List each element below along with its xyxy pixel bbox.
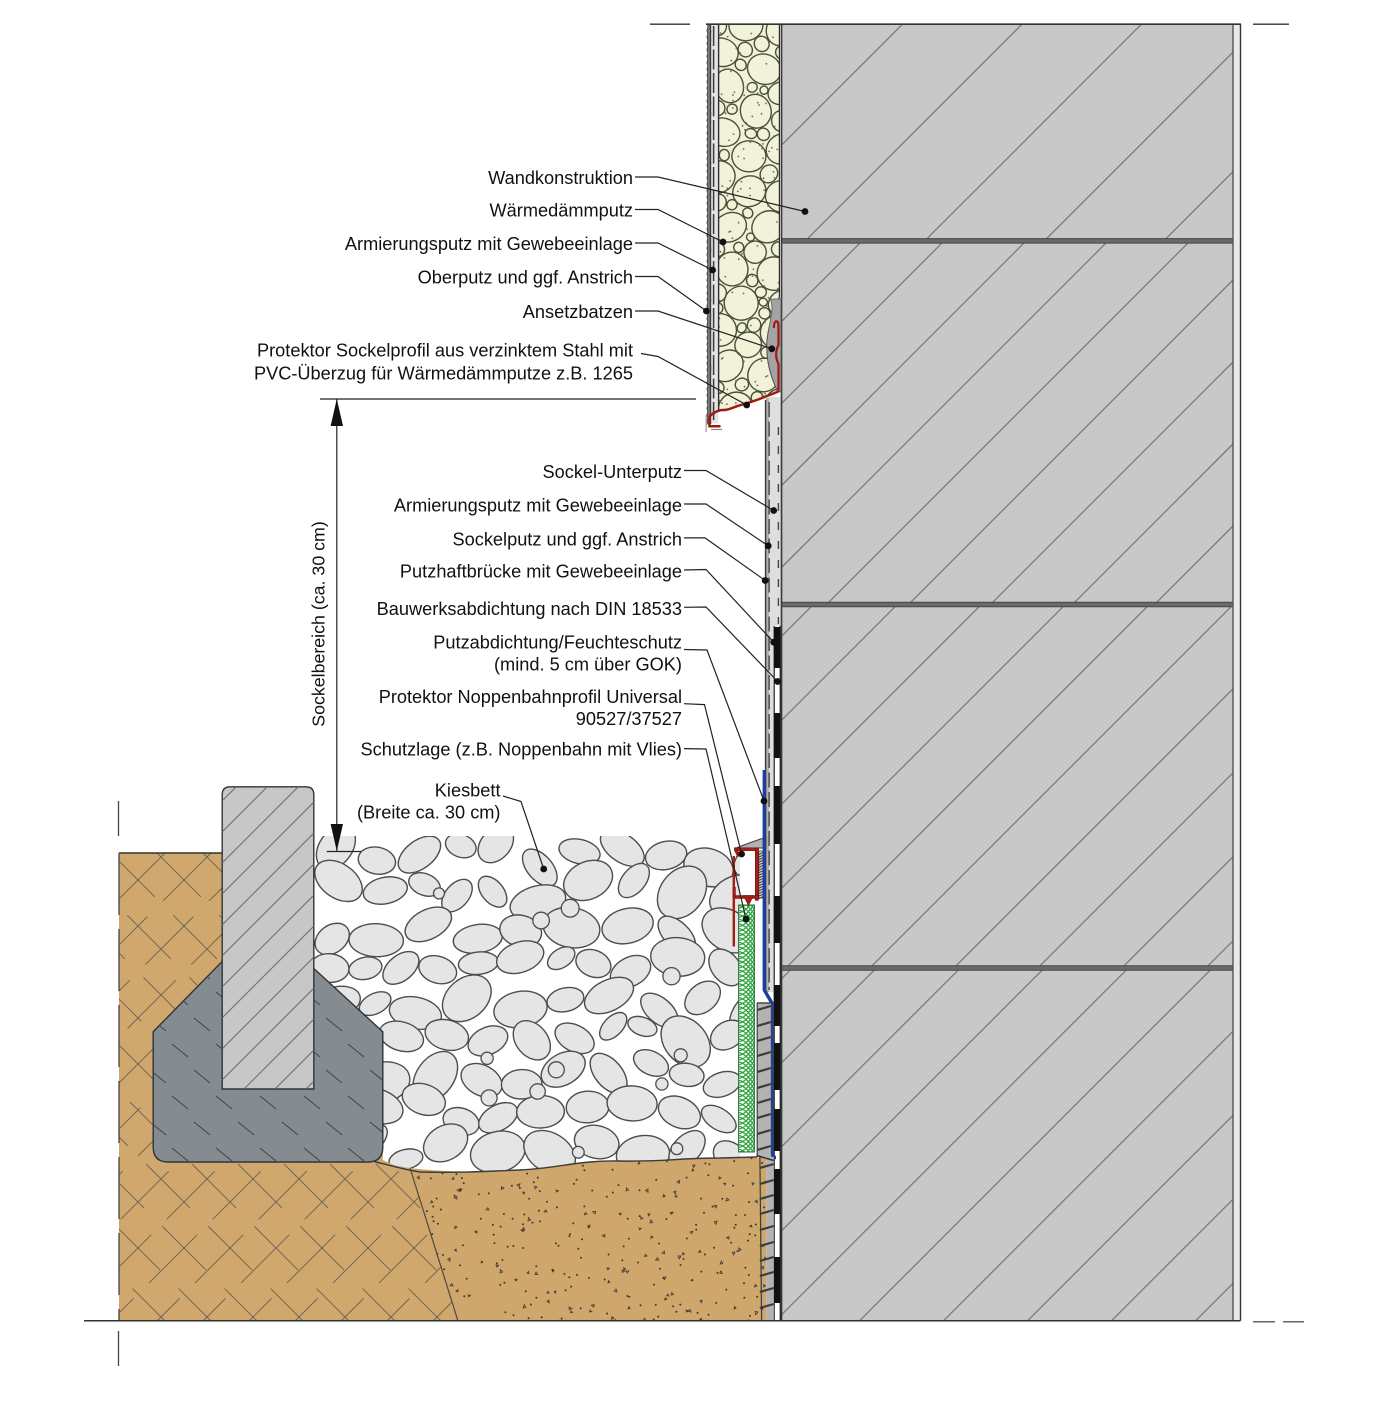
svg-text:Oberputz und ggf. Anstrich: Oberputz und ggf. Anstrich xyxy=(418,268,633,288)
svg-text:Wandkonstruktion: Wandkonstruktion xyxy=(488,168,633,188)
svg-text:(Breite ca. 30 cm): (Breite ca. 30 cm) xyxy=(357,803,501,823)
svg-text:(mind. 5 cm über GOK): (mind. 5 cm über GOK) xyxy=(494,655,682,675)
svg-text:Bauwerksabdichtung nach DIN 18: Bauwerksabdichtung nach DIN 18533 xyxy=(377,599,682,619)
svg-text:Armierungsputz mit Gewebeeinla: Armierungsputz mit Gewebeeinlage xyxy=(345,234,633,254)
svg-text:Putzhaftbrücke mit Gewebeeinla: Putzhaftbrücke mit Gewebeeinlage xyxy=(400,562,682,582)
svg-text:Schutzlage (z.B. Noppenbahn mi: Schutzlage (z.B. Noppenbahn mit Vlies) xyxy=(361,740,682,760)
svg-text:Putzabdichtung/Feuchteschutz: Putzabdichtung/Feuchteschutz xyxy=(433,633,682,653)
svg-text:Armierungsputz mit Gewebeeinla: Armierungsputz mit Gewebeeinlage xyxy=(394,495,682,515)
svg-text:Sockelbereich (ca. 30 cm): Sockelbereich (ca. 30 cm) xyxy=(309,521,329,727)
svg-text:Sockelputz und ggf. Anstrich: Sockelputz und ggf. Anstrich xyxy=(452,529,682,549)
svg-text:Ansetzbatzen: Ansetzbatzen xyxy=(523,302,633,322)
svg-text:Sockel-Unterputz: Sockel-Unterputz xyxy=(543,462,683,482)
svg-text:Protektor Noppenbahnprofil Uni: Protektor Noppenbahnprofil Universal xyxy=(379,687,682,707)
svg-text:Wärmedämmputz: Wärmedämmputz xyxy=(489,201,633,221)
svg-text:PVC-Überzug für Wärmedämmputze: PVC-Überzug für Wärmedämmputze z.B. 1265 xyxy=(254,364,633,384)
svg-text:Kiesbett: Kiesbett xyxy=(435,780,501,800)
svg-text:Protektor Sockelprofil aus ver: Protektor Sockelprofil aus verzinktem St… xyxy=(257,341,633,361)
svg-text:90527/37527: 90527/37527 xyxy=(576,709,682,729)
